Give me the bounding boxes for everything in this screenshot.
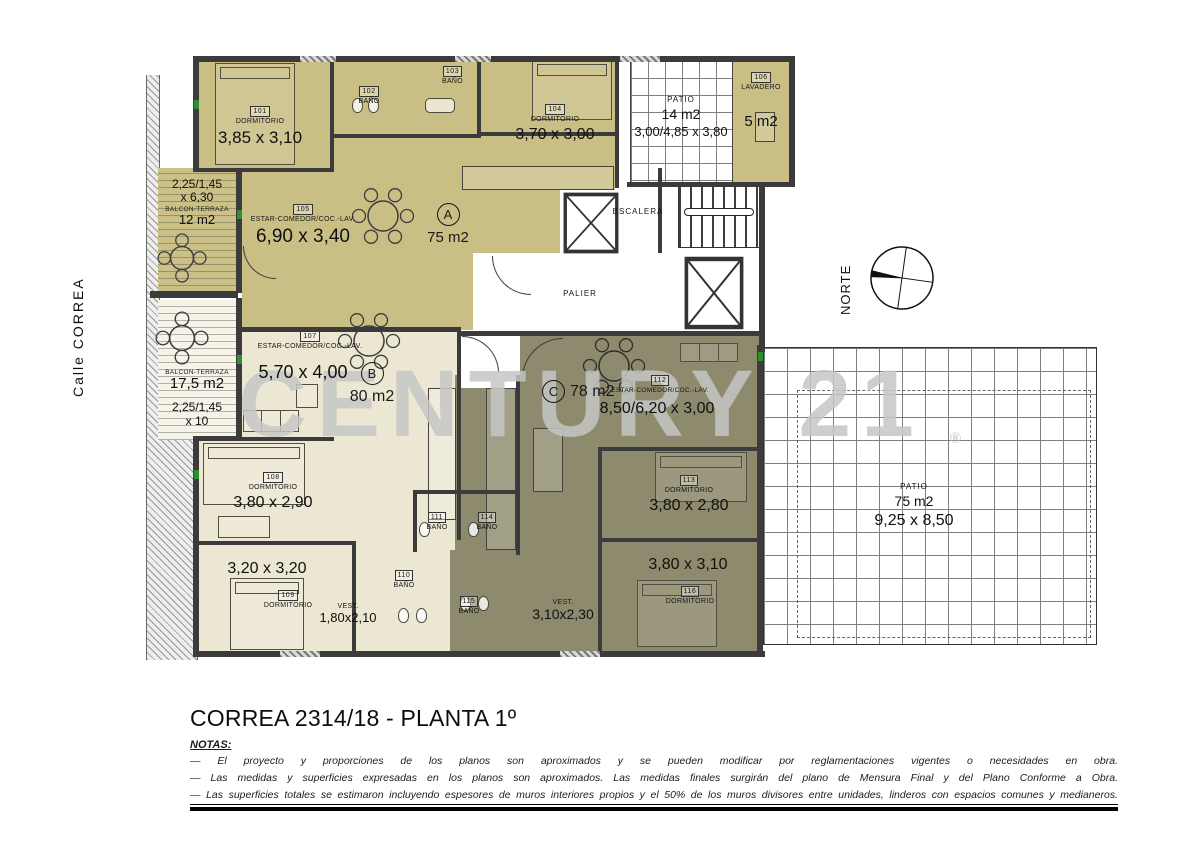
balcony-table-icon	[157, 233, 207, 283]
notes-heading: NOTAS:	[190, 739, 231, 751]
toilet-icon	[398, 608, 409, 623]
room-label-101: 101 DORMITORIO 3,85 x 3,10	[205, 106, 315, 147]
wall-hatch	[560, 651, 600, 657]
lavadero-label: 106 LAVADERO 5 m2	[732, 72, 790, 131]
registered-mark: ®	[950, 430, 961, 447]
vest-b-label: VEST. 1,80x2,10	[312, 602, 384, 625]
wall-hatch	[300, 56, 336, 62]
floor-plan-sheet: 101 DORMITORIO 3,85 x 3,10 102 BAÑO 103 …	[0, 0, 1200, 848]
wall	[598, 447, 602, 657]
wall	[330, 134, 480, 138]
stairs	[678, 186, 760, 248]
balcony-divider-wall	[150, 291, 238, 298]
stairs-handrail-icon	[684, 208, 754, 216]
wall-hatch	[280, 651, 320, 657]
room-label-114: 114 BAÑO	[464, 512, 510, 532]
wall	[193, 56, 199, 172]
north-label: NORTE	[838, 237, 853, 315]
note-line: — Las superficies totales se estimaron i…	[190, 789, 1118, 801]
room-dims-112: 8,50/6,20 x 3,00	[582, 398, 732, 418]
wall	[627, 182, 795, 187]
wall	[413, 490, 520, 494]
wall	[352, 541, 356, 657]
room-label-112: 112 ESTAR-COMEDOR/COC.-LAV.	[600, 375, 720, 394]
room-label-105: 105 ESTAR-COMEDOR/COC.-LAV. 6,90 x 3,40	[238, 204, 368, 247]
wall	[615, 56, 619, 188]
wall	[460, 331, 760, 336]
room-dims-107: 5,70 x 4,00	[248, 360, 358, 382]
balcony-table-icon	[155, 311, 209, 365]
bed-icon	[230, 578, 304, 650]
title-block-rule-thick	[190, 807, 1118, 811]
desk-icon	[218, 516, 270, 538]
escalera-label: ESCALERA	[608, 208, 668, 217]
note-line: — Las medidas y superficies expresadas e…	[190, 772, 1118, 784]
wall	[193, 168, 334, 172]
wall	[330, 56, 334, 172]
wall	[193, 56, 795, 62]
room-dims-109: 3,20 x 3,20	[212, 558, 322, 578]
wall	[193, 541, 355, 545]
wall	[598, 538, 759, 542]
unit-a-badge: A 75 m2	[418, 203, 478, 246]
room-label-107: 107 ESTAR-COMEDOR/COC.-LAV.	[250, 331, 370, 351]
wall-hatch	[620, 56, 660, 62]
window-marker	[194, 470, 199, 479]
room-label-113: 113 DORMITORIO 3,80 x 2,80	[646, 475, 732, 515]
room-dims-116: 3,80 x 3,10	[638, 554, 738, 574]
room-label-116: 116 DORMITORIO	[648, 586, 732, 606]
unit-b-badge: B 80 m2	[344, 362, 400, 406]
room-label-110: 110 BAÑO	[380, 570, 428, 590]
vest-c-label: VEST. 3,10x2,30	[520, 598, 606, 623]
bidet-icon	[416, 608, 427, 623]
room-label-108: 108 DORMITORIO 3,80 x 2,90	[218, 472, 328, 512]
street-label: Calle CORREA	[70, 272, 86, 397]
elevator-icon	[684, 256, 744, 330]
room-label-111: 111 BAÑO	[416, 512, 458, 532]
wall-hatch	[455, 56, 491, 62]
planter-strip-bottom	[146, 440, 198, 660]
room-label-104: 104 DORMITORIO 3,70 x 3,00	[500, 104, 610, 144]
patio-right-label: PATIO 75 m2 9,25 x 8,50	[858, 483, 970, 530]
title-block-rule	[190, 804, 1118, 805]
note-line: — El proyecto y proporciones de los plan…	[190, 755, 1118, 767]
compass-icon	[862, 238, 942, 318]
room-label-115: 115 BAÑO	[446, 596, 492, 616]
kitchen-counter-icon	[462, 166, 614, 190]
palier-label: PALIER	[550, 290, 610, 299]
balcony-top-label: 2,25/1,45 x 6,30 BALCON-TERRAZA 12 m2	[154, 178, 240, 228]
window-marker	[194, 100, 199, 109]
bathtub-icon	[425, 98, 455, 113]
elevator-icon	[563, 192, 619, 254]
patio-top-label: PATIO 14 m2 3,00/4,85 x 3,80	[628, 96, 734, 139]
plan-title: CORREA 2314/18 - PLANTA 1º	[190, 705, 516, 732]
balcony-bottom-label: BALCON-TERRAZA 17,5 m2 2,25/1,45 x 10	[152, 368, 242, 428]
wall	[193, 651, 765, 657]
room-label-102: 102 BAÑO	[340, 86, 398, 106]
wall	[759, 182, 765, 352]
room-label-103: 103 BAÑO	[425, 66, 480, 86]
